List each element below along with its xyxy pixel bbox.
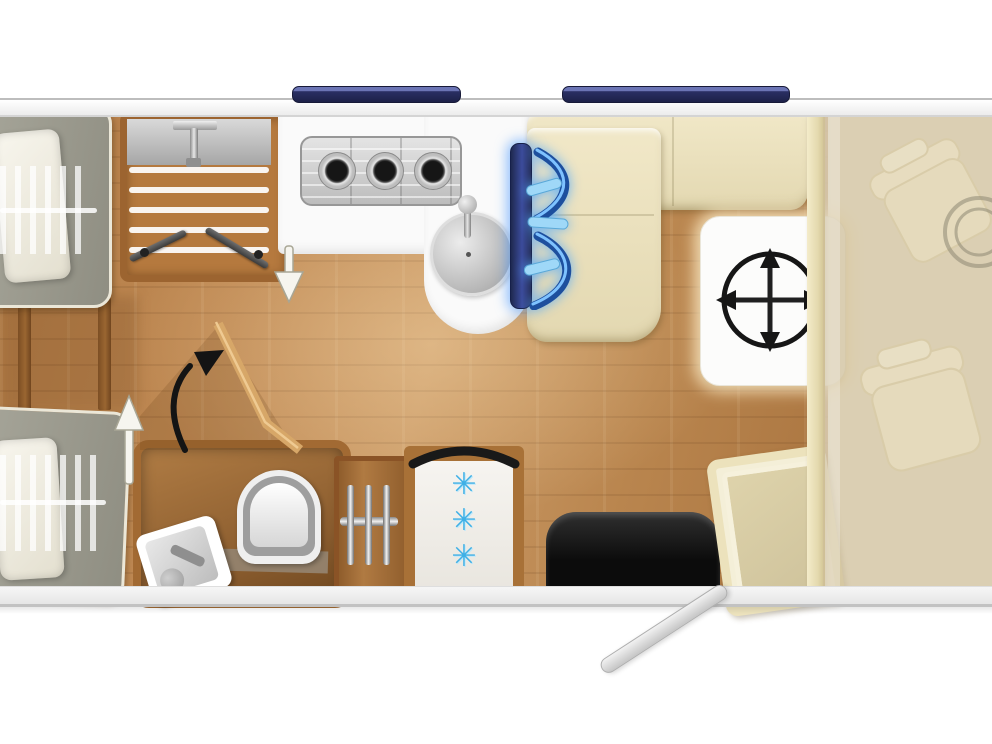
burner-icon	[414, 152, 452, 190]
bed-post	[18, 298, 31, 410]
shower-slat	[129, 187, 269, 193]
hanger-rod	[383, 485, 390, 565]
window-left	[292, 86, 461, 103]
swivel-arrows-icon	[524, 146, 588, 310]
burner-icon	[366, 152, 404, 190]
toilet	[237, 470, 321, 564]
snowflake-icon: ✳	[451, 468, 476, 501]
door-knob	[254, 250, 263, 259]
washroom	[133, 440, 351, 608]
hanger-rod	[365, 485, 372, 565]
gas-hob	[300, 136, 462, 206]
kitchen-tap	[464, 210, 471, 238]
bed-bottom-rail	[0, 500, 106, 505]
freezer-star-rating: ✳ ✳ ✳	[415, 468, 513, 573]
shower-mixer-pipe	[190, 128, 198, 160]
shower-head-icon	[186, 158, 201, 167]
wall-bottom	[0, 586, 992, 607]
shower-slat	[129, 207, 269, 213]
toilet-bowl	[250, 483, 308, 547]
cab-area	[823, 102, 992, 602]
snowflake-icon: ✳	[451, 504, 476, 537]
kitchen-tap-head	[458, 195, 477, 214]
wall-top	[0, 98, 992, 117]
window-right	[562, 86, 790, 103]
shower-slat	[129, 167, 269, 173]
bed-post	[98, 298, 111, 410]
burner-icon	[318, 152, 356, 190]
hanger-rod	[347, 485, 354, 565]
floorplan-canvas: ✳ ✳ ✳	[0, 0, 992, 744]
cab-light-band	[825, 108, 840, 596]
black-bench-seat	[546, 512, 720, 592]
sink-drain	[466, 252, 471, 257]
cushion-seam	[672, 116, 674, 206]
caravan-shadow	[0, 606, 992, 614]
bed-top-rail	[0, 208, 97, 213]
steering-wheel-icon	[935, 194, 992, 274]
wardrobe	[334, 456, 414, 602]
snowflake-icon: ✳	[451, 540, 476, 573]
fridge: ✳ ✳ ✳	[404, 446, 524, 592]
kitchen-sink	[430, 212, 514, 296]
shower-slat	[129, 227, 269, 233]
door-knob	[140, 248, 149, 257]
